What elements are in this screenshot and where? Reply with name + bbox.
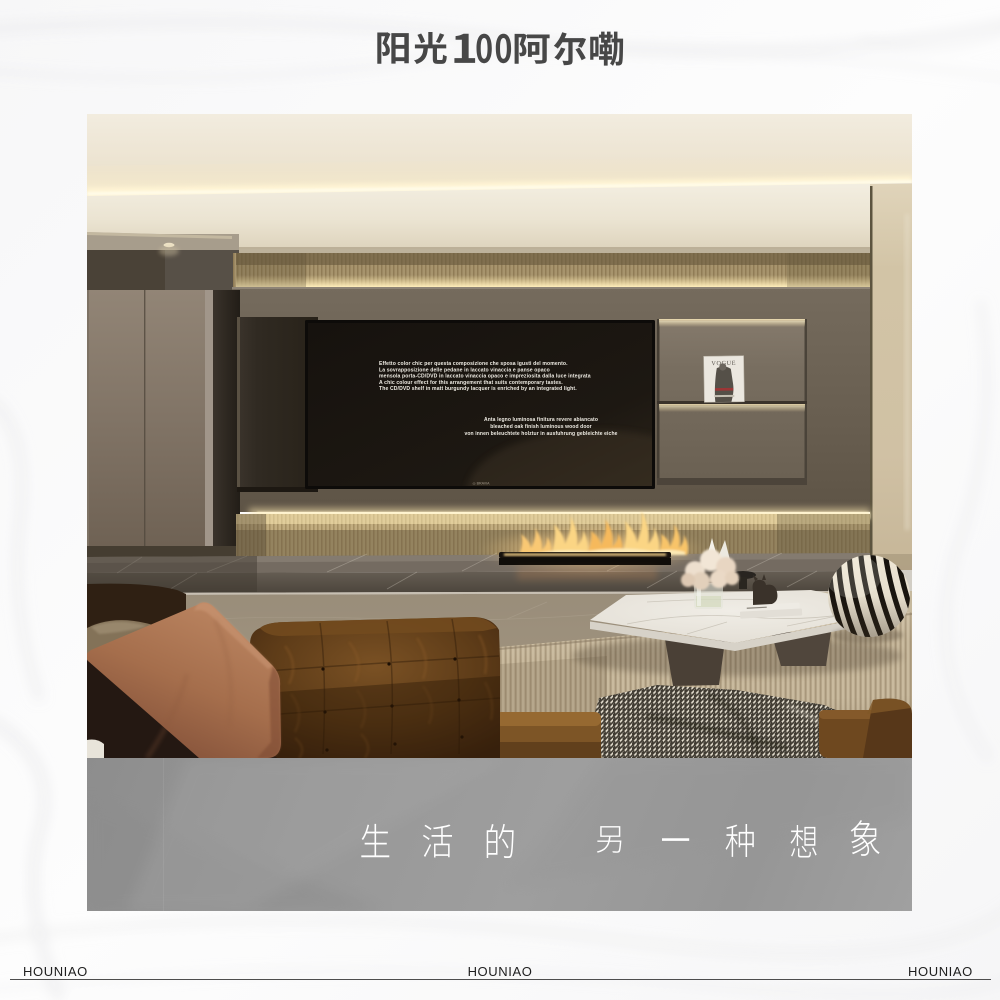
svg-text:La sovrapposizione delle pedan: La sovrapposizione delle pedane in lacca…	[379, 367, 550, 373]
svg-text:mensola porta-CD/DVD in laccat: mensola porta-CD/DVD in laccato vinaccia…	[379, 374, 591, 380]
svg-text:von innen beleuchtete holztur: von innen beleuchtete holztur in ausfuhr…	[464, 431, 617, 437]
svg-text:A chic colour effect for this: A chic colour effect for this arrangemen…	[379, 380, 563, 386]
svg-text:bleached oak finish luminous w: bleached oak finish luminous wood door	[490, 424, 592, 430]
svg-text:Effetto color chic per questa: Effetto color chic per questa composizio…	[379, 361, 568, 367]
svg-text:The CD/DVD shelf in matt burgu: The CD/DVD shelf in matt burgundy lacque…	[379, 386, 577, 392]
svg-text:◎ BRAVIA: ◎ BRAVIA	[472, 482, 490, 486]
svg-text:Anta legno luminosa finitura r: Anta legno luminosa finitura revere abia…	[484, 417, 598, 423]
